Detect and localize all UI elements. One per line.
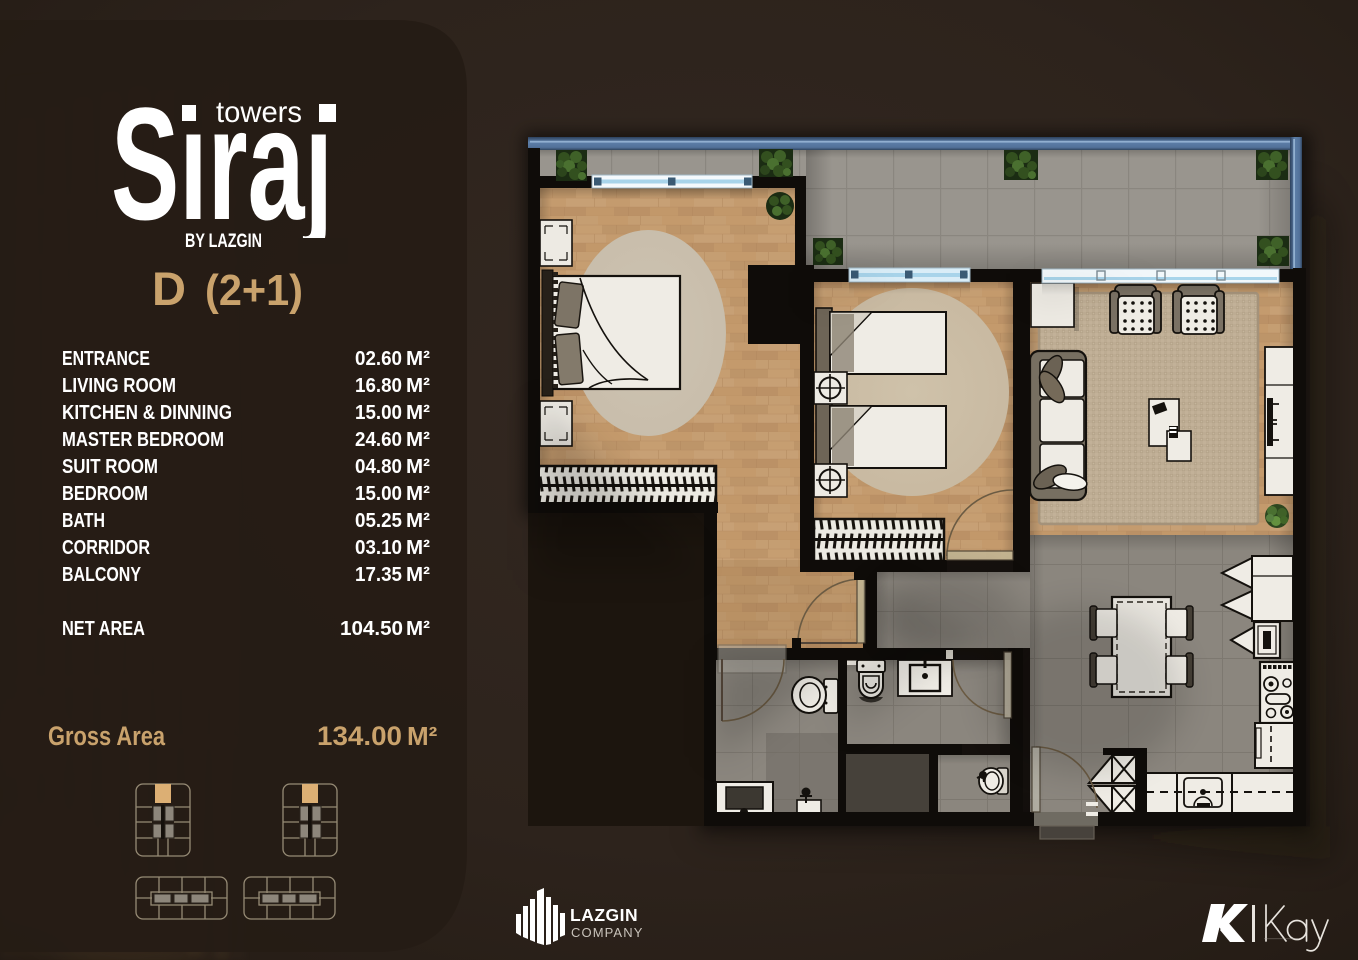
svg-text:02.60: 02.60 bbox=[355, 347, 402, 370]
svg-text:NET AREA: NET AREA bbox=[62, 617, 145, 640]
svg-text:COMPANY: COMPANY bbox=[571, 925, 643, 940]
svg-text:M²: M² bbox=[406, 374, 430, 397]
svg-text:M²: M² bbox=[407, 721, 438, 751]
svg-text:SUIT ROOM: SUIT ROOM bbox=[62, 455, 158, 478]
svg-text:04.80: 04.80 bbox=[355, 455, 402, 478]
svg-text:M²: M² bbox=[406, 482, 430, 505]
svg-text:BEDROOM: BEDROOM bbox=[62, 482, 148, 505]
svg-text:03.10: 03.10 bbox=[355, 536, 402, 559]
svg-text:D: D bbox=[152, 262, 186, 315]
svg-text:M²: M² bbox=[406, 617, 430, 640]
svg-text:05.25: 05.25 bbox=[355, 509, 402, 532]
svg-text:M²: M² bbox=[406, 347, 430, 370]
svg-text:Siraj: Siraj bbox=[111, 75, 333, 254]
svg-text:M²: M² bbox=[406, 509, 430, 532]
svg-text:LAZGIN: LAZGIN bbox=[570, 905, 638, 925]
svg-text:17.35: 17.35 bbox=[355, 563, 402, 586]
svg-text:15.00: 15.00 bbox=[355, 401, 402, 424]
svg-text:BATH: BATH bbox=[62, 509, 105, 532]
svg-text:M²: M² bbox=[406, 536, 430, 559]
svg-text:MASTER BEDROOM: MASTER BEDROOM bbox=[62, 428, 224, 451]
svg-text:15.00: 15.00 bbox=[355, 482, 402, 505]
svg-text:134.00: 134.00 bbox=[317, 721, 402, 751]
svg-text:CORRIDOR: CORRIDOR bbox=[62, 536, 150, 559]
svg-text:Gross Area: Gross Area bbox=[48, 721, 166, 751]
svg-text:KITCHEN & DINNING: KITCHEN & DINNING bbox=[62, 401, 232, 424]
svg-text:M²: M² bbox=[406, 563, 430, 586]
svg-text:BY LAZGIN: BY LAZGIN bbox=[185, 231, 262, 252]
svg-text:(2+1): (2+1) bbox=[205, 266, 303, 315]
svg-text:16.80: 16.80 bbox=[355, 374, 402, 397]
svg-text:104.50: 104.50 bbox=[340, 617, 403, 640]
svg-text:LIVING ROOM: LIVING ROOM bbox=[62, 374, 176, 397]
svg-text:ENTRANCE: ENTRANCE bbox=[62, 347, 150, 370]
svg-text:M²: M² bbox=[406, 455, 430, 478]
svg-text:BALCONY: BALCONY bbox=[62, 563, 141, 586]
svg-text:24.60: 24.60 bbox=[355, 428, 402, 451]
svg-text:M²: M² bbox=[406, 401, 430, 424]
svg-text:M²: M² bbox=[406, 428, 430, 451]
